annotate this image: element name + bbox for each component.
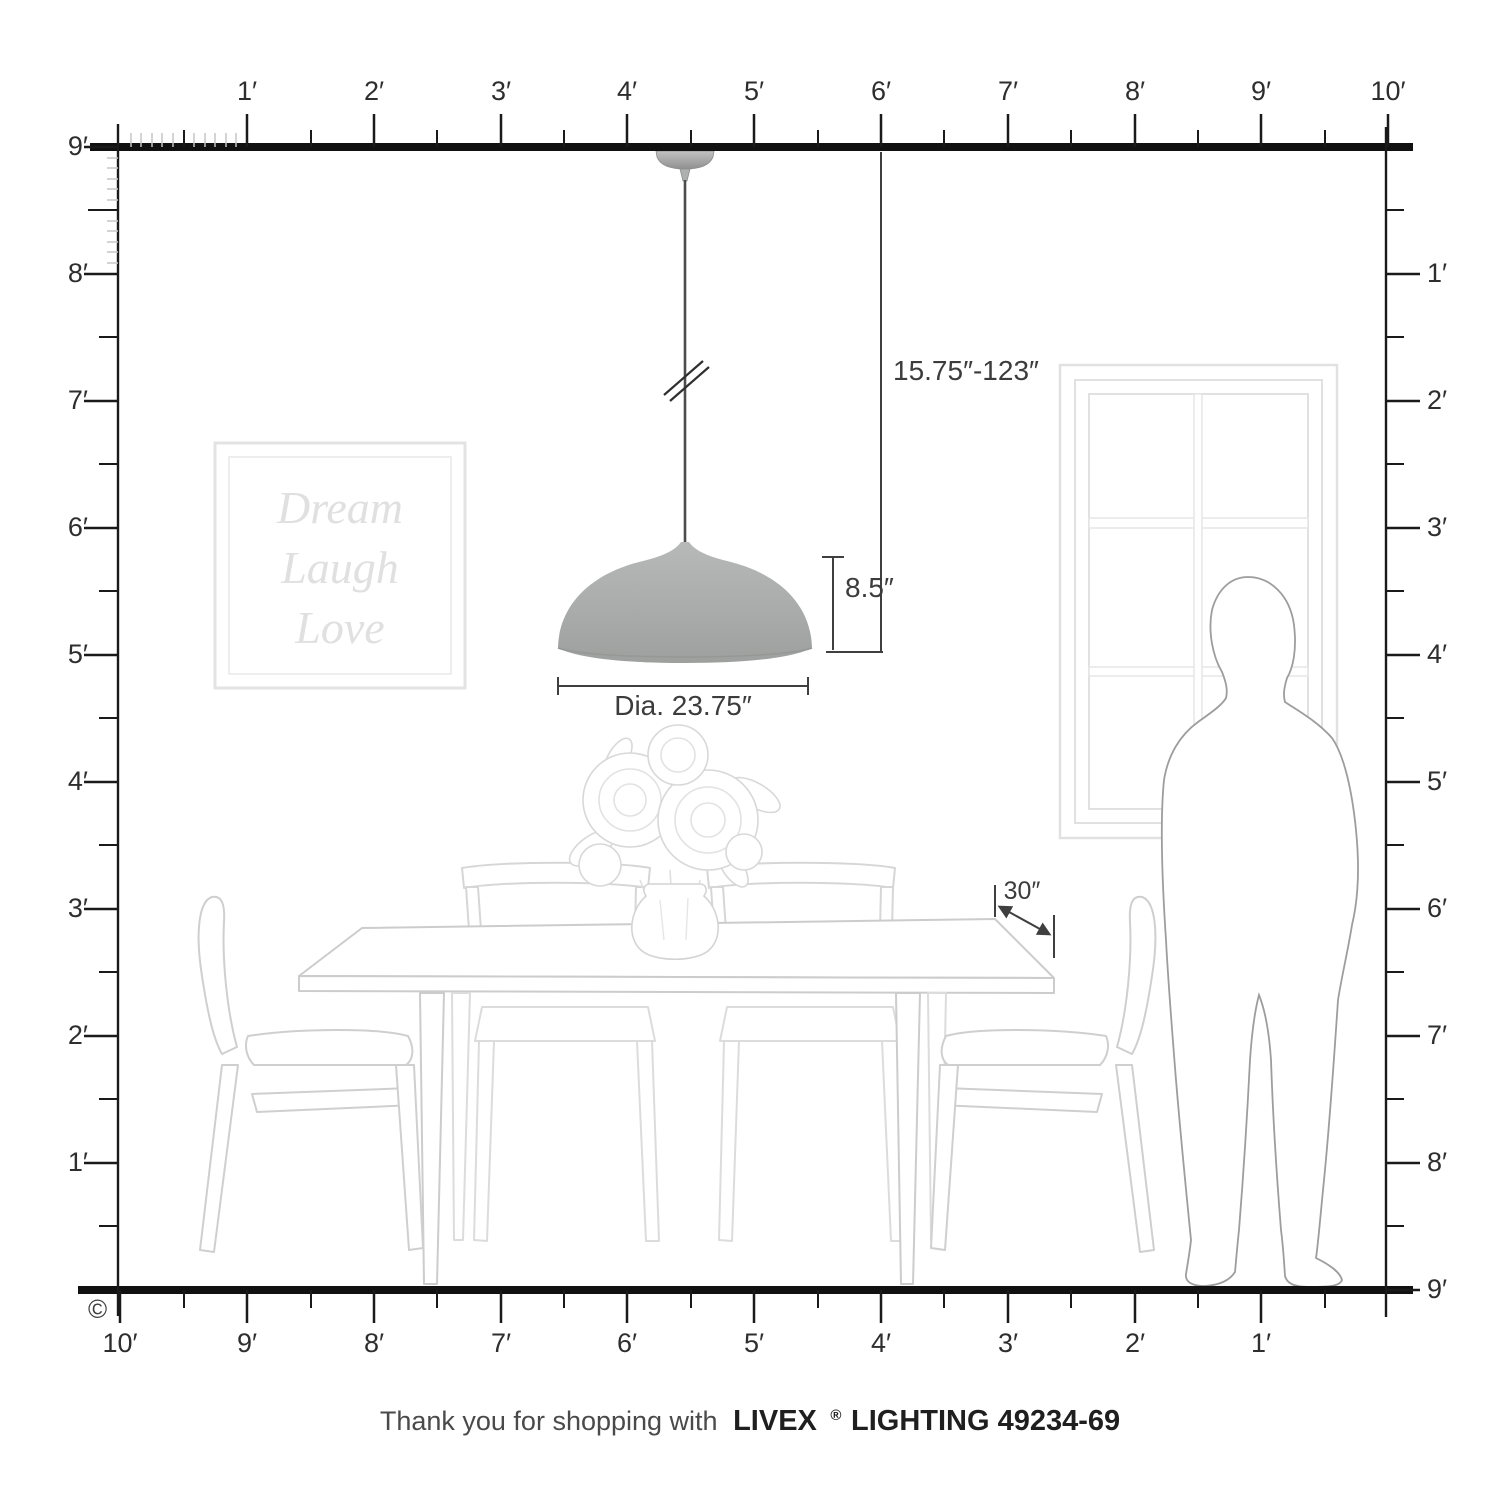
ruler-label: 7′ (1427, 1020, 1497, 1050)
hang-range-dimension: 15.75″-123″ (893, 356, 1039, 386)
ruler-label: 1′ (1229, 1328, 1293, 1358)
inch-ticks (107, 133, 236, 263)
wall-art-line: Dream (215, 478, 465, 538)
ruler-label: 8′ (342, 1328, 406, 1358)
ruler-label: 10′ (1358, 76, 1418, 106)
ruler-label: 9′ (1427, 1274, 1497, 1304)
right-ruler-rail (1385, 127, 1387, 1317)
ruler-label: 10′ (88, 1328, 152, 1358)
ruler-label: 2′ (1103, 1328, 1167, 1358)
pendant-shade (558, 542, 812, 663)
table-depth-dimension: 30″ (988, 876, 1056, 906)
ruler-label: 9′ (215, 1328, 279, 1358)
right-major-ticks (1386, 274, 1420, 1290)
vase (632, 884, 718, 959)
registered-mark: ® (830, 1407, 841, 1424)
ruler-label: 9′ (38, 131, 88, 161)
pendant-cord (684, 180, 687, 543)
shade-height-dimension: 8.5″ (845, 573, 894, 603)
copyright-symbol: © (88, 1294, 107, 1325)
ruler-label: 4′ (1427, 639, 1497, 669)
left-major-ticks (84, 147, 118, 1163)
ruler-label: 5′ (724, 76, 784, 106)
ruler-label: 7′ (978, 76, 1038, 106)
ruler-label: 1′ (38, 1147, 88, 1177)
ruler-label: 3′ (1427, 512, 1497, 542)
ruler-label: 3′ (471, 76, 531, 106)
right-minor-ticks (1386, 210, 1404, 1226)
ruler-label: 5′ (1427, 766, 1497, 796)
ruler-label: 3′ (976, 1328, 1040, 1358)
ruler-label: 8′ (38, 258, 88, 288)
ruler-label: 6′ (595, 1328, 659, 1358)
product-number: LIGHTING 49234-69 (851, 1405, 1120, 1437)
footer-thanks-text: Thank you for shopping with (380, 1406, 718, 1436)
wall-art-line: Love (215, 598, 465, 658)
person-silhouette (1162, 577, 1358, 1287)
ruler-label: 8′ (1427, 1147, 1497, 1177)
ruler-label: 6′ (851, 76, 911, 106)
pendant-canopy (656, 151, 714, 169)
ruler-label: 4′ (38, 766, 88, 796)
chair-back-right (707, 863, 904, 1241)
ruler-label: 4′ (849, 1328, 913, 1358)
ruler-label: 2′ (1427, 385, 1497, 415)
ruler-label: 1′ (217, 76, 277, 106)
ruler-label: 1′ (1427, 258, 1497, 288)
left-minor-ticks (88, 210, 118, 1226)
ruler-label: 3′ (38, 893, 88, 923)
ruler-label: 9′ (1231, 76, 1291, 106)
ruler-label: 2′ (38, 1020, 88, 1050)
shade-diameter-dimension: Dia. 23.75″ (583, 691, 783, 721)
ruler-label: 5′ (722, 1328, 786, 1358)
wall-art-text: Dream Laugh Love (215, 478, 465, 658)
brand-name: LIVEX (733, 1405, 817, 1437)
ruler-label: 5′ (38, 639, 88, 669)
diagram-artwork (0, 0, 1500, 1500)
wall-art-line: Laugh (215, 538, 465, 598)
ruler-label: 4′ (597, 76, 657, 106)
cord-break-symbol (664, 361, 709, 401)
pendant-light (558, 151, 812, 663)
ruler-label: 7′ (469, 1328, 533, 1358)
ruler-label: 8′ (1105, 76, 1165, 106)
footer: Thank you for shopping with LIVEX ® LIGH… (0, 1405, 1500, 1438)
ceiling-line (90, 143, 1413, 151)
ruler-label: 2′ (344, 76, 404, 106)
scale-diagram: 1′ 2′ 3′ 4′ 5′ 6′ 7′ 8′ 9′ 10′ 9′ 8′ 7′ … (0, 0, 1500, 1500)
ruler-label: 6′ (38, 512, 88, 542)
chair-back-left (462, 863, 659, 1241)
ruler-label: 7′ (38, 385, 88, 415)
left-ruler-rail (117, 124, 119, 1316)
ruler-label: 6′ (1427, 893, 1497, 923)
floor-line (78, 1286, 1413, 1294)
